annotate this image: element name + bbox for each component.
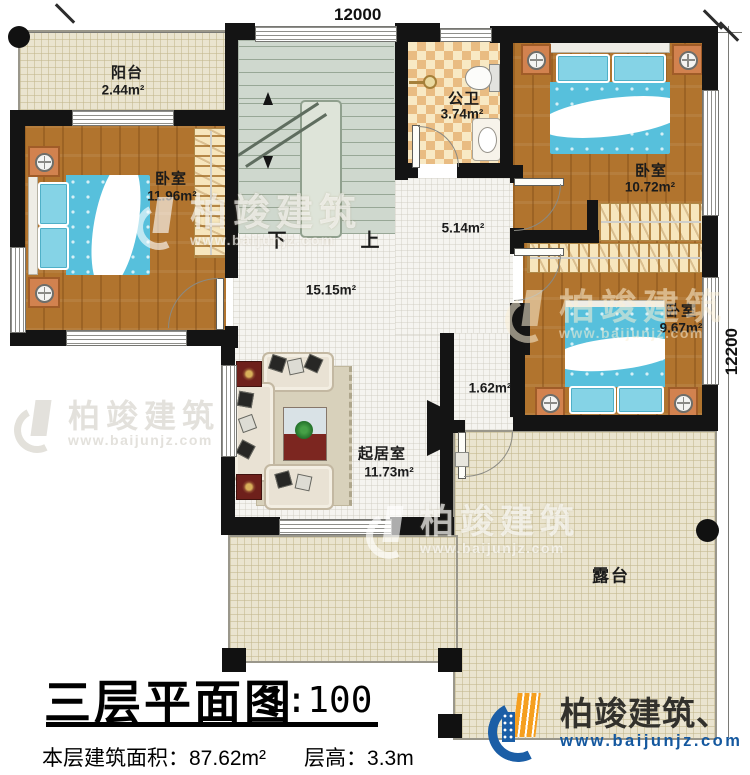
column-round xyxy=(696,519,719,542)
wall-segment xyxy=(395,23,408,180)
brand-logo-icon xyxy=(14,398,58,450)
brand-name: 柏竣建筑、 xyxy=(560,697,742,730)
washbasin-bowl xyxy=(478,127,497,153)
wall-segment xyxy=(221,346,235,365)
wall-segment xyxy=(702,26,718,90)
window xyxy=(702,277,719,385)
wall-segment xyxy=(10,110,25,247)
sofa-pillow xyxy=(287,358,305,376)
room-label: 卧室 xyxy=(155,168,187,189)
column xyxy=(438,648,462,672)
wall-segment xyxy=(225,23,238,117)
room-label: 起居室 xyxy=(358,443,406,464)
dimension-width: 12000 xyxy=(334,5,381,25)
window xyxy=(279,519,392,535)
brand-url: www.baijunjz.com xyxy=(560,733,742,750)
wall-segment xyxy=(513,26,704,43)
wardrobe xyxy=(598,203,704,241)
stair-down-label: 下 xyxy=(267,226,286,253)
room-area: 2.44m² xyxy=(102,83,145,98)
room-label: 阳台 xyxy=(111,62,143,83)
nightstand xyxy=(28,146,60,177)
room-label: 公卫 xyxy=(448,88,480,109)
sofa-pillow xyxy=(295,474,313,492)
room-area: 15.15m² xyxy=(306,283,356,298)
window xyxy=(221,365,237,457)
bed xyxy=(565,300,665,414)
wall-segment xyxy=(440,333,454,433)
window xyxy=(702,90,719,216)
room-area: 9.67m² xyxy=(660,321,703,336)
floor-area-value: 87.62m² xyxy=(189,747,266,770)
floor-area-label: 本层建筑面积： xyxy=(42,747,189,770)
wall-segment xyxy=(510,303,525,417)
lamp-icon xyxy=(674,394,693,413)
column xyxy=(438,714,462,738)
wall-segment xyxy=(587,200,598,243)
wall-segment xyxy=(440,432,453,519)
window xyxy=(10,247,26,333)
wall-segment xyxy=(510,230,599,243)
nightstand xyxy=(521,44,551,75)
stair-direction-arrow xyxy=(263,156,273,169)
room-area: 11.96m² xyxy=(147,189,197,204)
floor-height-label: 层高： xyxy=(304,747,367,770)
floor-stats: 本层建筑面积：87.62m²层高：3.3m xyxy=(42,742,414,772)
wall-segment xyxy=(513,415,718,431)
side-table xyxy=(236,361,262,387)
dimension-height: 12200 xyxy=(722,328,742,375)
lamp-icon xyxy=(541,394,560,413)
room-label: 露台 xyxy=(592,562,630,587)
wardrobe xyxy=(194,128,227,258)
window xyxy=(440,28,492,42)
wall-segment xyxy=(225,326,238,348)
brand-logo: 柏竣建筑、 www.baijunjz.com xyxy=(488,690,742,756)
wall-segment xyxy=(225,115,238,278)
lamp-icon xyxy=(35,284,54,303)
wall-segment xyxy=(500,26,513,167)
stair-up-label: 上 xyxy=(360,226,379,253)
terrace-floor-left xyxy=(228,535,458,663)
drawing-scale: 1:100 xyxy=(264,680,372,721)
side-table xyxy=(236,474,262,500)
watermark-url: www.baijunjz.com xyxy=(68,433,220,448)
lamp-icon xyxy=(679,51,698,70)
wall-segment xyxy=(702,214,718,280)
stair-void xyxy=(300,100,342,238)
room-area: 10.72m² xyxy=(625,180,675,195)
faucet-icon xyxy=(423,75,437,89)
dimension-line xyxy=(728,26,729,738)
wall-segment xyxy=(172,110,228,126)
wall-segment xyxy=(390,517,454,535)
toilet-bowl xyxy=(465,66,492,90)
room-area: 5.14m² xyxy=(442,221,485,236)
window xyxy=(255,26,397,42)
watermark: 柏竣建筑 www.baijunjz.com xyxy=(14,398,220,450)
window xyxy=(72,110,174,126)
nightstand xyxy=(668,387,698,418)
watermark-brand: 柏竣建筑 xyxy=(68,400,220,434)
floor-plan: 阳台 2.44m² 卧室 11.96m² 公卫 3.74m² 卧室 10.72m… xyxy=(0,0,750,775)
room-area: 1.62m² xyxy=(469,381,512,396)
wall-segment xyxy=(221,517,280,535)
nightstand xyxy=(28,277,60,308)
room-area: 3.74m² xyxy=(441,107,484,122)
nightstand xyxy=(535,387,565,418)
nightstand xyxy=(672,44,703,75)
stair-direction-arrow xyxy=(263,92,273,105)
stair-steps-right xyxy=(337,103,395,234)
floor-height-value: 3.3m xyxy=(367,747,414,770)
lamp-icon xyxy=(35,153,54,172)
room-label: 卧室 xyxy=(635,160,667,181)
plant-icon xyxy=(295,421,313,439)
column-round xyxy=(8,26,30,48)
wall-segment xyxy=(221,453,235,519)
brand-logo-icon xyxy=(488,690,550,756)
room-label: 卧室 xyxy=(665,300,697,321)
bed xyxy=(28,175,150,275)
corner-tick xyxy=(55,3,76,24)
room-area: 11.73m² xyxy=(364,465,414,480)
sofa-pillow xyxy=(237,391,254,408)
lamp-icon xyxy=(527,51,546,70)
corridor-floor xyxy=(395,178,513,335)
window xyxy=(66,330,187,346)
title-underline xyxy=(46,722,378,727)
bed xyxy=(550,42,670,154)
